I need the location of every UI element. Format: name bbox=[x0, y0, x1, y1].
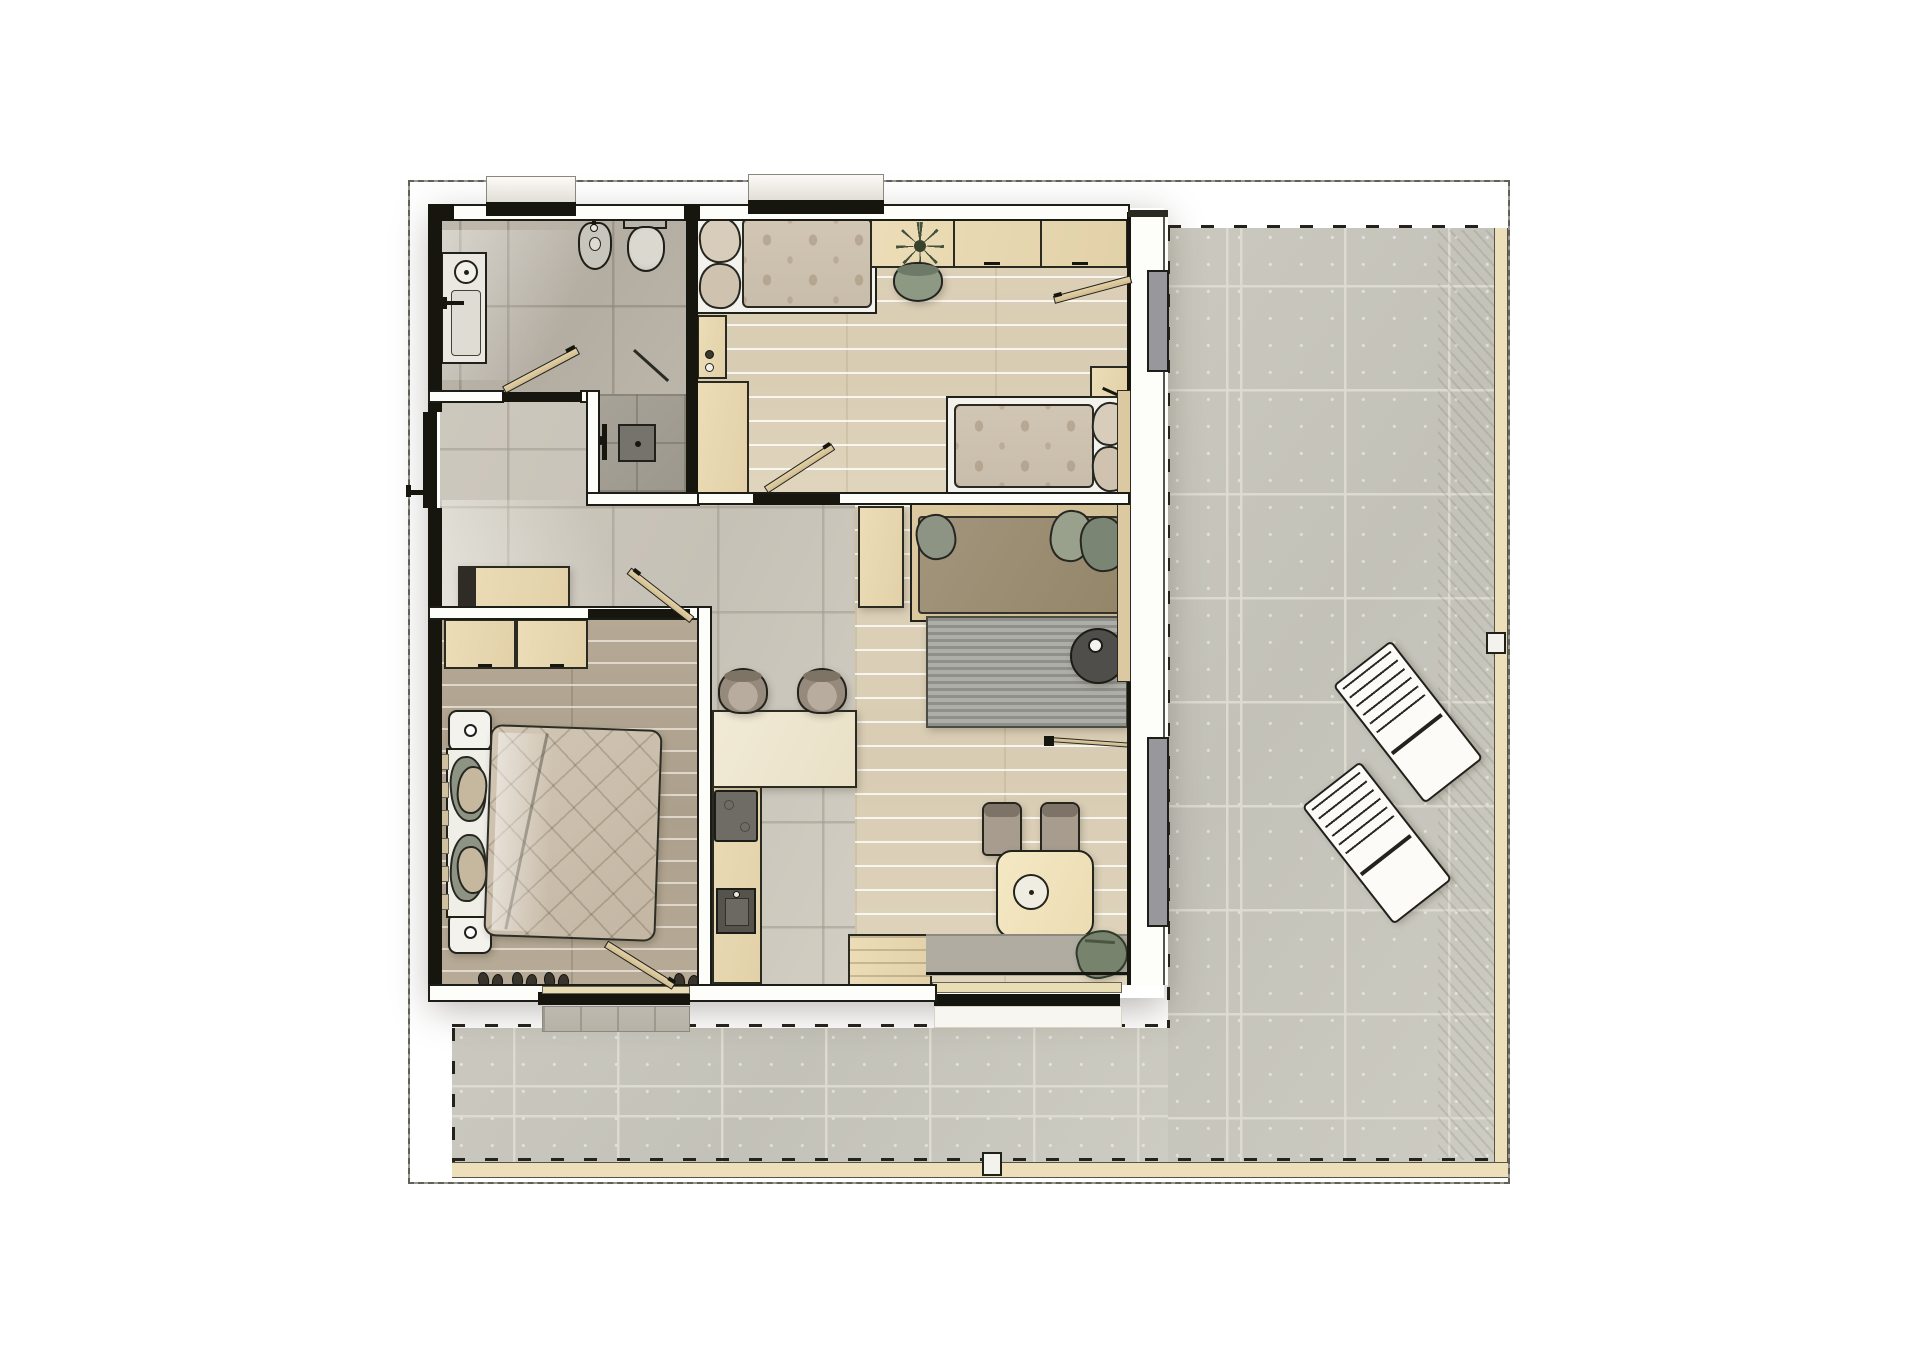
twin-wardrobe-box-tall bbox=[695, 381, 749, 495]
terrace-left-edge bbox=[452, 1028, 455, 1162]
shower-drain bbox=[635, 441, 641, 447]
master-duvet-quilt bbox=[483, 724, 662, 942]
sliding-panel-upper bbox=[1147, 270, 1169, 372]
sliding-panel-lower bbox=[1147, 737, 1169, 927]
headboard-slat-2 bbox=[441, 782, 449, 798]
wardrobe-knob-light bbox=[705, 363, 714, 372]
lounger-hinge-bar bbox=[1360, 834, 1412, 876]
stool-back bbox=[724, 670, 762, 682]
nightstand-top bbox=[448, 710, 492, 752]
fruit-bowl-center bbox=[1029, 890, 1034, 895]
wall-left-lower bbox=[428, 508, 442, 988]
wall-left-upper bbox=[428, 204, 442, 412]
desk-divider-1 bbox=[953, 218, 955, 266]
bed-top-duvet bbox=[742, 218, 872, 308]
wardrobe-knob-dark bbox=[705, 350, 714, 359]
floor-plan-page bbox=[0, 0, 1920, 1359]
wall-shower-left bbox=[586, 390, 600, 506]
wardrobe-handle-1 bbox=[478, 664, 492, 667]
terrace-bottom-paving bbox=[452, 1028, 1168, 1162]
duvet-fold-highlight bbox=[492, 732, 555, 932]
window-band-bathroom bbox=[486, 202, 576, 216]
wall-bathroom-bedroom bbox=[686, 204, 698, 506]
desk-handle-2 bbox=[1072, 262, 1088, 265]
desk-divider-2 bbox=[1040, 218, 1042, 266]
desk-handle-1 bbox=[984, 262, 1000, 265]
wall-faucet bbox=[444, 301, 464, 305]
stool-back bbox=[803, 670, 841, 682]
cushion-fold bbox=[1085, 939, 1115, 944]
dining-step-white bbox=[934, 1006, 1122, 1028]
wall-kitchen-west bbox=[697, 606, 712, 986]
terrace-timber-border-bottom bbox=[452, 1162, 1508, 1178]
headboard-slat-4 bbox=[441, 838, 449, 854]
wardrobe-handle-2 bbox=[550, 664, 564, 667]
toilet bbox=[627, 226, 665, 272]
lounger-hinge-bar bbox=[1391, 713, 1443, 755]
wall-bathroom-bottom-left bbox=[428, 390, 504, 403]
terrace-timber-border-right bbox=[1494, 228, 1508, 1178]
terrace-edge-post-right bbox=[1486, 632, 1506, 654]
bidet-tap-dot bbox=[590, 224, 598, 232]
master-wardrobe-left bbox=[444, 619, 516, 669]
sink-faucet-dot bbox=[733, 891, 740, 898]
master-outdoor-step bbox=[542, 1006, 690, 1032]
hall-sideboard-end bbox=[458, 566, 476, 608]
dining-chair-1 bbox=[982, 802, 1022, 856]
master-wardrobe-right bbox=[516, 619, 588, 669]
entry-door-handle-tip bbox=[406, 485, 411, 497]
vanity-inner-edge bbox=[451, 290, 481, 356]
headboard-slat-6 bbox=[441, 894, 449, 910]
kitchen-island bbox=[712, 710, 857, 788]
door-leaf-tip bbox=[1053, 292, 1062, 298]
sink-drain bbox=[464, 270, 469, 275]
terrace-outer-bottom-edge bbox=[452, 1158, 1494, 1161]
cooktop-burner-1 bbox=[724, 800, 734, 810]
plant-center bbox=[914, 240, 926, 252]
desk-chair-back bbox=[897, 264, 939, 276]
kitchen-bench-cabinet bbox=[848, 934, 932, 986]
shower-tray bbox=[618, 424, 656, 462]
dining-chair-2 bbox=[1040, 802, 1080, 856]
kitchen-sink bbox=[716, 888, 756, 934]
terrace-top-edge bbox=[1168, 225, 1494, 228]
wall-shower-bottom bbox=[586, 492, 700, 506]
desk-chair bbox=[893, 262, 943, 302]
bar-stool-2 bbox=[797, 668, 847, 714]
dining-slider-black bbox=[934, 994, 1120, 1006]
chair-back bbox=[1042, 804, 1078, 817]
twin-bedroom-door-threshold bbox=[753, 494, 840, 505]
bed-right-duvet bbox=[954, 404, 1094, 488]
side-table-bowl bbox=[1088, 638, 1103, 653]
wall-top-thin-right bbox=[1128, 210, 1168, 217]
bar-stool-1 bbox=[718, 668, 768, 714]
door-pull-tip bbox=[1044, 736, 1054, 746]
terrace-edge-post-bottom bbox=[982, 1152, 1002, 1176]
dining-track-line-1 bbox=[926, 972, 1130, 975]
bidet-bowl bbox=[589, 237, 601, 251]
chair-back bbox=[984, 804, 1020, 817]
entry-door-leaf bbox=[423, 412, 437, 508]
side-console bbox=[858, 506, 904, 608]
bathroom-door-threshold bbox=[502, 392, 582, 402]
lamp-bottom bbox=[464, 926, 477, 939]
sink-basin bbox=[725, 898, 749, 926]
fruit-bowl bbox=[1013, 874, 1049, 910]
vanity-sink bbox=[454, 260, 478, 284]
headboard-slat-5 bbox=[441, 866, 449, 882]
headboard-slat-3 bbox=[441, 810, 449, 826]
window-band-bedroom bbox=[748, 200, 884, 214]
dining-sill-wood bbox=[932, 982, 1122, 993]
cooktop bbox=[714, 790, 758, 842]
cooktop-burner-2 bbox=[740, 822, 750, 832]
glazing-wood-mullion bbox=[1117, 390, 1131, 682]
lamp-top bbox=[464, 724, 477, 737]
headboard-slat-1 bbox=[441, 754, 449, 770]
terrace-edge-hatching bbox=[1438, 230, 1494, 1160]
